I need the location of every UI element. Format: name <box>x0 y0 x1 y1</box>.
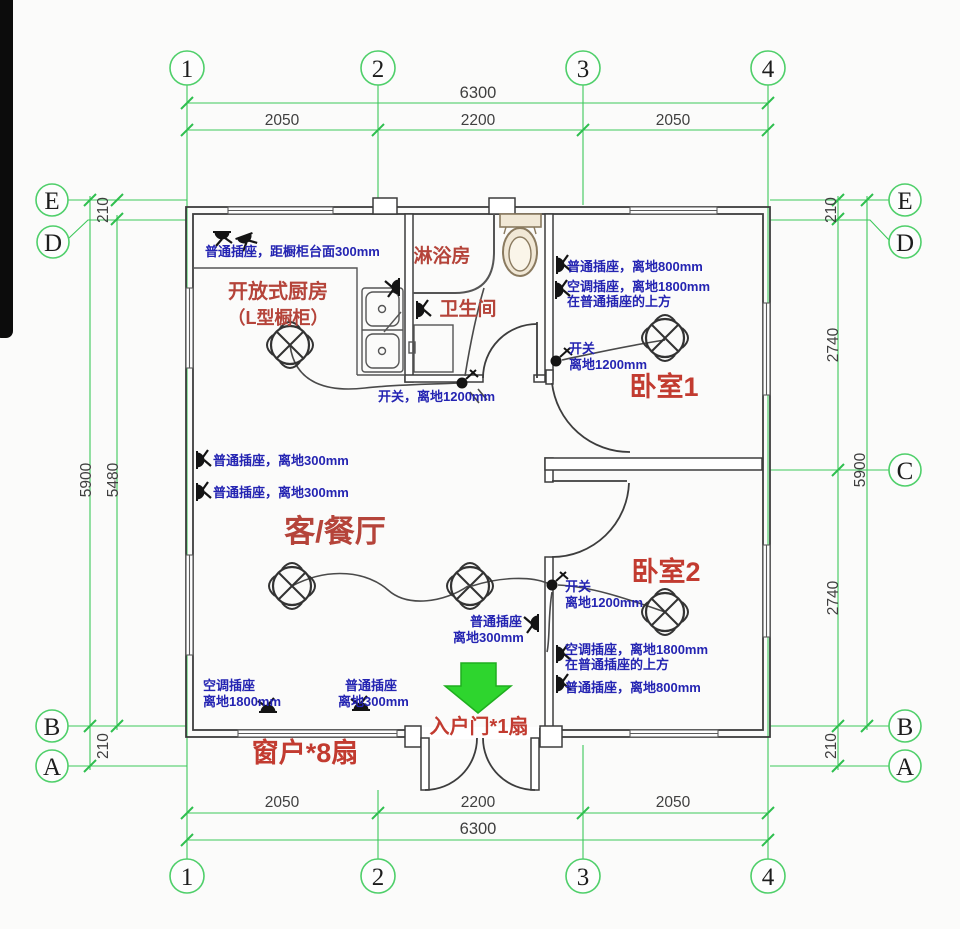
grid-layer: 6300 2050 2200 2050 2050 2200 2050 6300 … <box>68 84 889 860</box>
note-bed2-ac-1: 空调插座，离地1800mm <box>565 642 708 657</box>
grid-bubble-left-D: D <box>37 226 69 258</box>
grid-bubble-top-4: 4 <box>751 51 785 85</box>
window-top-kitchen <box>228 207 333 214</box>
svg-text:B: B <box>897 714 914 741</box>
bed1-door <box>546 370 630 452</box>
label-bedroom1: 卧室1 <box>629 371 698 402</box>
grid-bubble-right-A: A <box>889 750 921 782</box>
svg-text:4: 4 <box>762 864 775 891</box>
window-right-bed1 <box>763 303 770 395</box>
socket-living-1 <box>197 450 211 469</box>
svg-text:D: D <box>896 230 914 257</box>
note-bed1-socket: 普通插座，离地800mm <box>567 259 703 274</box>
ceiling-light-living-2 <box>447 563 493 609</box>
svg-text:3: 3 <box>577 56 590 83</box>
dim-bottom-seg3: 2050 <box>656 794 691 811</box>
ceiling-light-bed1 <box>642 315 688 361</box>
socket-bathroom <box>417 300 431 319</box>
grid-bubble-right-E: E <box>889 184 921 216</box>
kitchen-sink <box>362 288 403 372</box>
bathroom-door <box>483 322 537 378</box>
svg-text:C: C <box>897 458 914 485</box>
socket-hall <box>524 614 538 633</box>
svg-text:2: 2 <box>372 56 385 83</box>
grid-bubble-bottom-1: 1 <box>170 859 204 893</box>
grid-bubble-top-2: 2 <box>361 51 395 85</box>
label-kitchen-line2: （L型橱柜） <box>228 307 329 328</box>
ceiling-light-living-1 <box>269 563 315 609</box>
washing-machine <box>409 325 453 372</box>
label-bedroom2: 卧室2 <box>631 556 700 587</box>
dim-right-210-top: 210 <box>823 197 840 223</box>
dim-left-inner: 5480 <box>105 462 122 497</box>
dim-right-total: 5900 <box>852 452 869 487</box>
ceiling-light-kitchen <box>267 322 313 368</box>
grid-bubble-bottom-2: 2 <box>361 859 395 893</box>
label-entry-note: 入户门*1扇 <box>430 714 529 738</box>
dim-top-seg3: 2050 <box>656 112 691 129</box>
grid-bubble-right-C: C <box>889 454 921 486</box>
screenshot-black-bar <box>0 0 13 338</box>
svg-text:D: D <box>44 230 62 257</box>
note-living-socket-2: 普通插座，离地300mm <box>213 485 349 500</box>
dim-bottom-total: 6300 <box>460 820 497 838</box>
svg-text:E: E <box>44 188 59 215</box>
grid-bubble-bottom-3: 3 <box>566 859 600 893</box>
dim-bottom-seg2: 2200 <box>461 794 496 811</box>
grid-bubble-bottom-4: 4 <box>751 859 785 893</box>
label-windows-note: 窗户*8扇 <box>252 737 359 768</box>
note-bottom-socket-1: 普通插座 <box>345 678 397 693</box>
floor-plan-drawing: 6300 2050 2200 2050 2050 2200 2050 6300 … <box>0 0 960 929</box>
window-right-bed2 <box>763 545 770 637</box>
note-bed1-ac-2: 在普通插座的上方 <box>567 294 671 309</box>
floor-plan-page: 6300 2050 2200 2050 2050 2200 2050 6300 … <box>0 0 960 929</box>
svg-text:4: 4 <box>762 56 775 83</box>
window-left-living <box>186 555 193 655</box>
dim-left-210-top: 210 <box>95 197 112 223</box>
svg-text:A: A <box>896 754 914 781</box>
toilet <box>500 214 541 276</box>
bed2-door <box>552 481 629 557</box>
window-top-bed1 <box>630 207 717 214</box>
label-living-dining: 客/餐厅 <box>284 514 386 549</box>
socket-living-2 <box>197 482 211 501</box>
dim-top-total: 6300 <box>460 84 497 102</box>
note-bed2-switch-2: 离地1200mm <box>565 595 643 610</box>
dim-bottom-seg1: 2050 <box>265 794 300 811</box>
note-kitchen-socket: 普通插座，距橱柜台面300mm <box>205 244 380 259</box>
note-hall-socket-1: 普通插座 <box>470 614 522 629</box>
dim-left-210-bottom: 210 <box>95 733 112 759</box>
svg-text:E: E <box>897 188 912 215</box>
grid-bubble-top-1: 1 <box>170 51 204 85</box>
label-wc: 卫生间 <box>439 297 496 320</box>
note-bed1-ac-1: 空调插座，离地1800mm <box>567 279 710 294</box>
grid-bubble-left-E: E <box>36 184 68 216</box>
window-left-kitchen <box>186 288 193 368</box>
dim-right-2740-a: 2740 <box>825 327 842 362</box>
svg-text:1: 1 <box>181 864 194 891</box>
svg-text:3: 3 <box>577 864 590 891</box>
note-bed2-ac-2: 在普通插座的上方 <box>565 657 669 672</box>
window-bottom-living <box>238 730 397 737</box>
svg-text:A: A <box>43 754 61 781</box>
grid-bubble-right-D: D <box>889 226 921 258</box>
grid-bubble-right-B: B <box>889 710 921 742</box>
note-bed2-switch-1: 开关 <box>565 579 591 594</box>
note-hall-socket-2: 离地300mm <box>453 630 524 645</box>
grid-bubble-top-3: 3 <box>566 51 600 85</box>
label-kitchen-line1: 开放式厨房 <box>228 279 328 303</box>
entry-door <box>421 738 539 790</box>
dim-left-total: 5900 <box>78 462 95 497</box>
window-bottom-bed2 <box>630 730 718 737</box>
svg-text:1: 1 <box>181 56 194 83</box>
entry-arrow-icon <box>445 663 511 713</box>
dim-top-seg2: 2200 <box>461 112 496 129</box>
note-bath-switch: 开关，离地1200mm <box>378 389 495 404</box>
note-bottom-ac-1: 空调插座 <box>203 678 255 693</box>
note-bed1-switch-2: 离地1200mm <box>569 357 647 372</box>
note-bed2-socket: 普通插座，离地800mm <box>565 680 701 695</box>
svg-text:B: B <box>44 714 61 741</box>
dim-top-seg1: 2050 <box>265 112 300 129</box>
dim-right-2740-b: 2740 <box>825 580 842 615</box>
grid-bubbles: 1 2 3 4 1 2 3 4 E D B A E D C B A <box>36 51 921 893</box>
label-shower-room: 淋浴房 <box>413 244 470 267</box>
grid-bubble-left-B: B <box>36 710 68 742</box>
grid-bubble-left-A: A <box>36 750 68 782</box>
note-bottom-socket-2: 离地300mm <box>338 694 409 709</box>
ceiling-light-bed2 <box>642 589 688 635</box>
note-bottom-ac-2: 离地1800mm <box>203 694 281 709</box>
svg-text:2: 2 <box>372 864 385 891</box>
note-living-socket-1: 普通插座，离地300mm <box>213 453 349 468</box>
dim-right-210-bottom: 210 <box>823 733 840 759</box>
note-bed1-switch-1: 开关 <box>569 341 595 356</box>
